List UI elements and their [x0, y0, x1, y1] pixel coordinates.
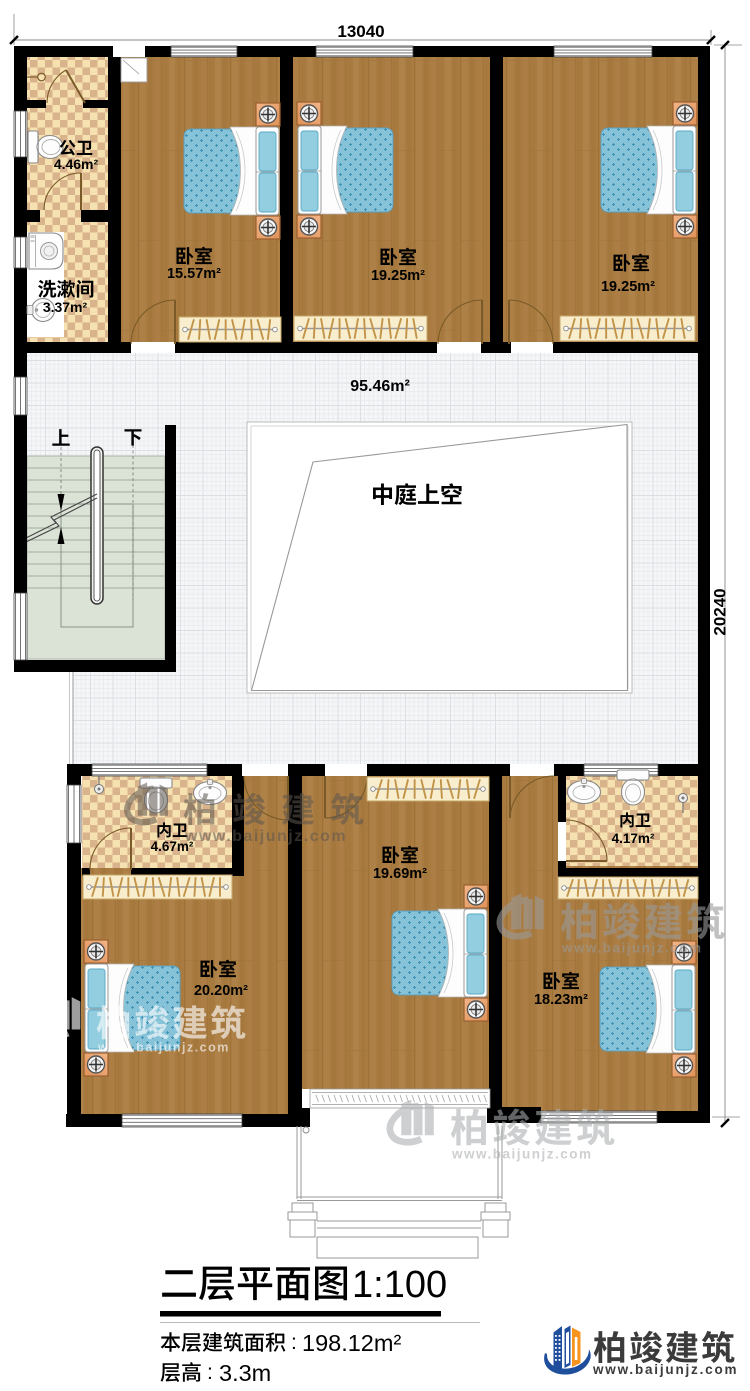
svg-text::: : [207, 1361, 213, 1384]
svg-text:19.69m²: 19.69m² [373, 866, 427, 882]
svg-text:20240: 20240 [711, 588, 730, 635]
svg-text:18.23m²: 18.23m² [534, 992, 588, 1008]
svg-text:3.3m: 3.3m [219, 1360, 271, 1386]
svg-text:19.25m²: 19.25m² [601, 279, 655, 295]
svg-text:www.baijunjz.com: www.baijunjz.com [561, 941, 703, 956]
svg-text:3.37m²: 3.37m² [43, 299, 88, 315]
svg-text:www.baijunjz.com: www.baijunjz.com [97, 1041, 230, 1055]
svg-text:www.baijunjz.com: www.baijunjz.com [592, 1362, 738, 1377]
svg-text:95.46m²: 95.46m² [350, 378, 410, 395]
svg-text:4.17m²: 4.17m² [612, 831, 655, 846]
svg-text:20.20m²: 20.20m² [194, 983, 248, 999]
svg-text:www.baijunjz.com: www.baijunjz.com [184, 828, 347, 845]
svg-text:1:100: 1:100 [352, 1264, 447, 1306]
svg-text:15.57m²: 15.57m² [167, 266, 221, 282]
svg-text::: : [291, 1331, 297, 1354]
svg-text:19.25m²: 19.25m² [371, 268, 425, 284]
svg-text:13040: 13040 [337, 22, 384, 41]
svg-text:4.46m²: 4.46m² [54, 156, 99, 172]
svg-text:www.baijunjz.com: www.baijunjz.com [451, 1147, 593, 1162]
svg-text:198.12m²: 198.12m² [302, 1330, 401, 1356]
